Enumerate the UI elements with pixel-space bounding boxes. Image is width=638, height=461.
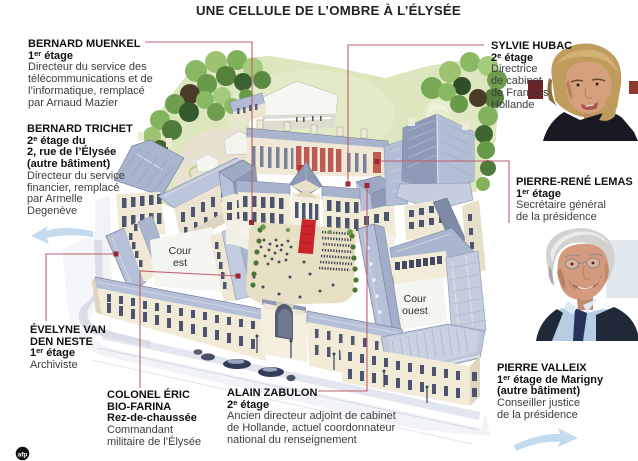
svg-text:afp: afp [18,452,28,459]
